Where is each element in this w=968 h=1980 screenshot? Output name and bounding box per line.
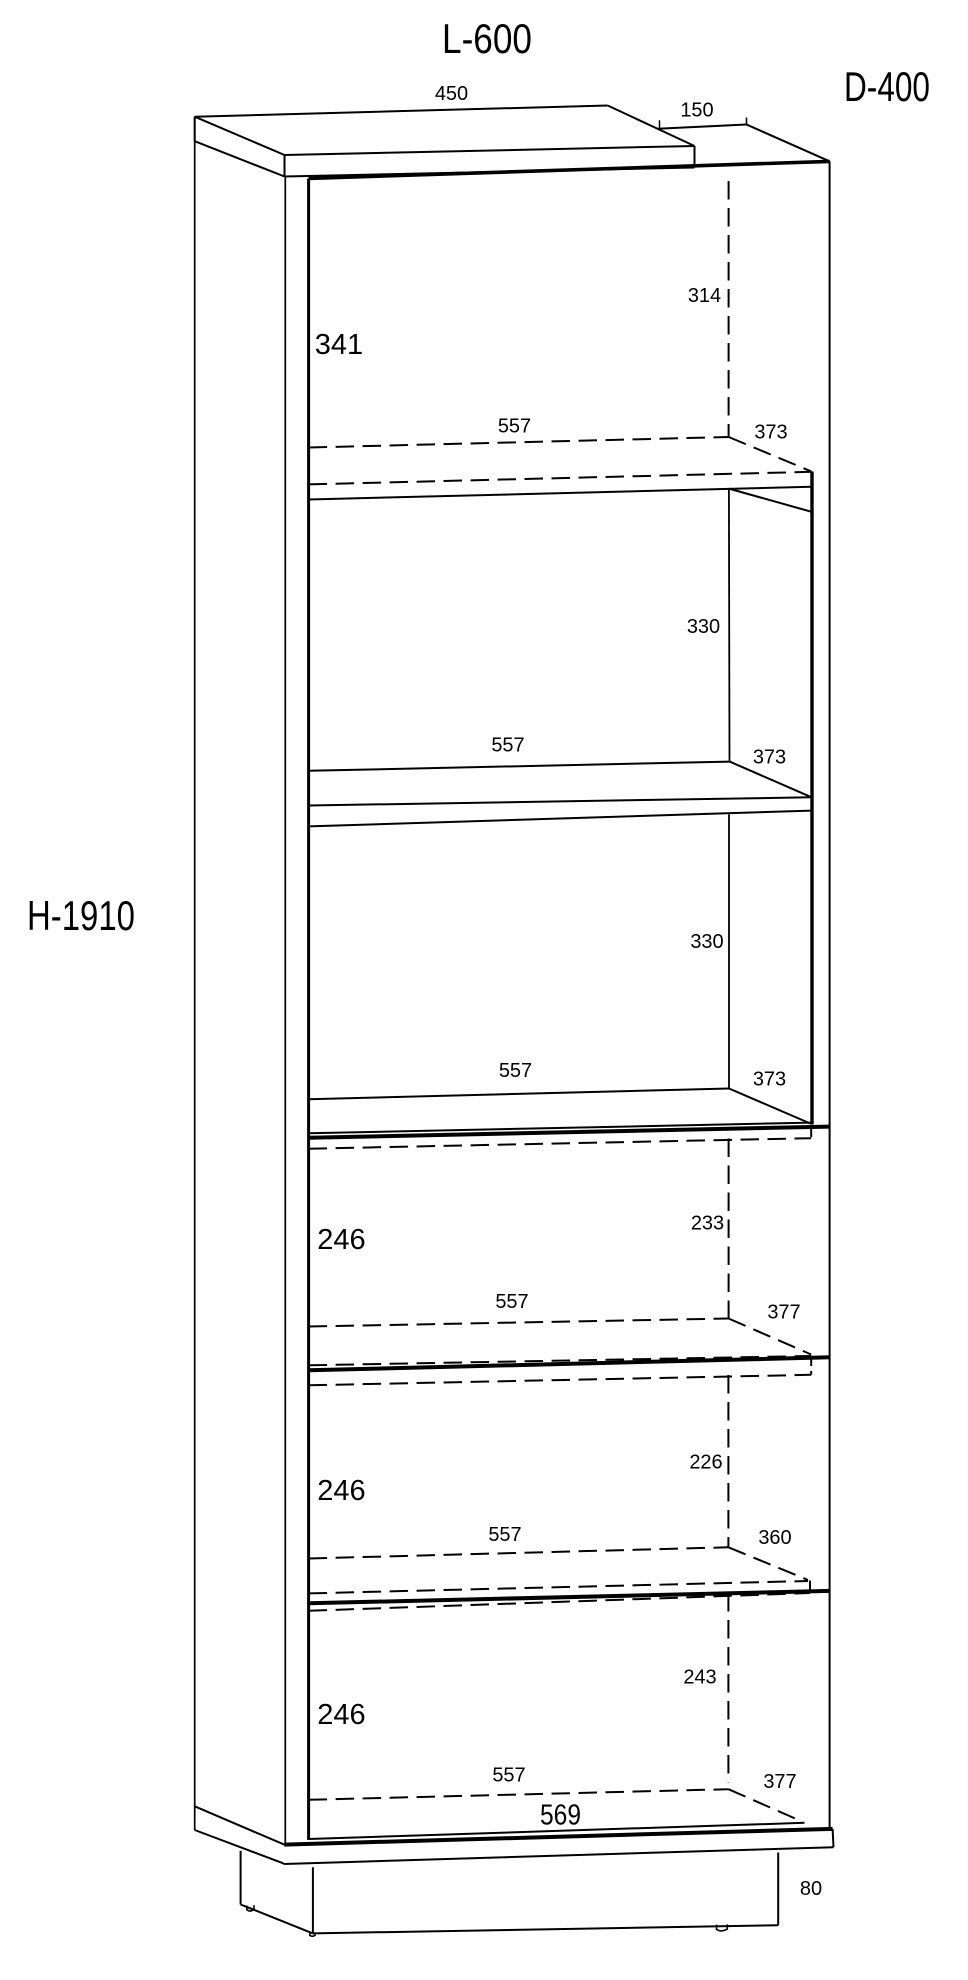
svg-text:557: 557 bbox=[492, 1765, 525, 1787]
svg-text:373: 373 bbox=[754, 422, 787, 444]
svg-text:L-600: L-600 bbox=[442, 15, 532, 62]
svg-text:557: 557 bbox=[491, 735, 524, 757]
svg-text:330: 330 bbox=[687, 616, 720, 638]
svg-text:569: 569 bbox=[540, 1800, 581, 1832]
svg-text:557: 557 bbox=[495, 1291, 528, 1313]
svg-text:246: 246 bbox=[317, 1475, 365, 1507]
svg-text:377: 377 bbox=[767, 1302, 800, 1324]
svg-text:243: 243 bbox=[683, 1667, 716, 1689]
svg-text:314: 314 bbox=[688, 285, 721, 307]
svg-text:341: 341 bbox=[315, 329, 363, 361]
svg-text:450: 450 bbox=[435, 83, 468, 105]
svg-text:233: 233 bbox=[691, 1213, 724, 1235]
svg-text:80: 80 bbox=[800, 1878, 822, 1900]
svg-text:557: 557 bbox=[498, 416, 531, 438]
svg-text:226: 226 bbox=[689, 1452, 722, 1474]
svg-text:373: 373 bbox=[753, 1069, 786, 1091]
svg-text:557: 557 bbox=[499, 1060, 532, 1082]
svg-text:360: 360 bbox=[758, 1527, 791, 1549]
svg-text:246: 246 bbox=[317, 1224, 365, 1256]
svg-text:330: 330 bbox=[690, 931, 723, 953]
svg-text:D-400: D-400 bbox=[844, 63, 930, 110]
svg-text:377: 377 bbox=[763, 1771, 796, 1793]
svg-text:H-1910: H-1910 bbox=[27, 892, 135, 939]
svg-text:373: 373 bbox=[753, 747, 786, 769]
svg-text:150: 150 bbox=[680, 100, 713, 122]
svg-text:557: 557 bbox=[488, 1524, 521, 1546]
svg-text:246: 246 bbox=[317, 1699, 365, 1731]
